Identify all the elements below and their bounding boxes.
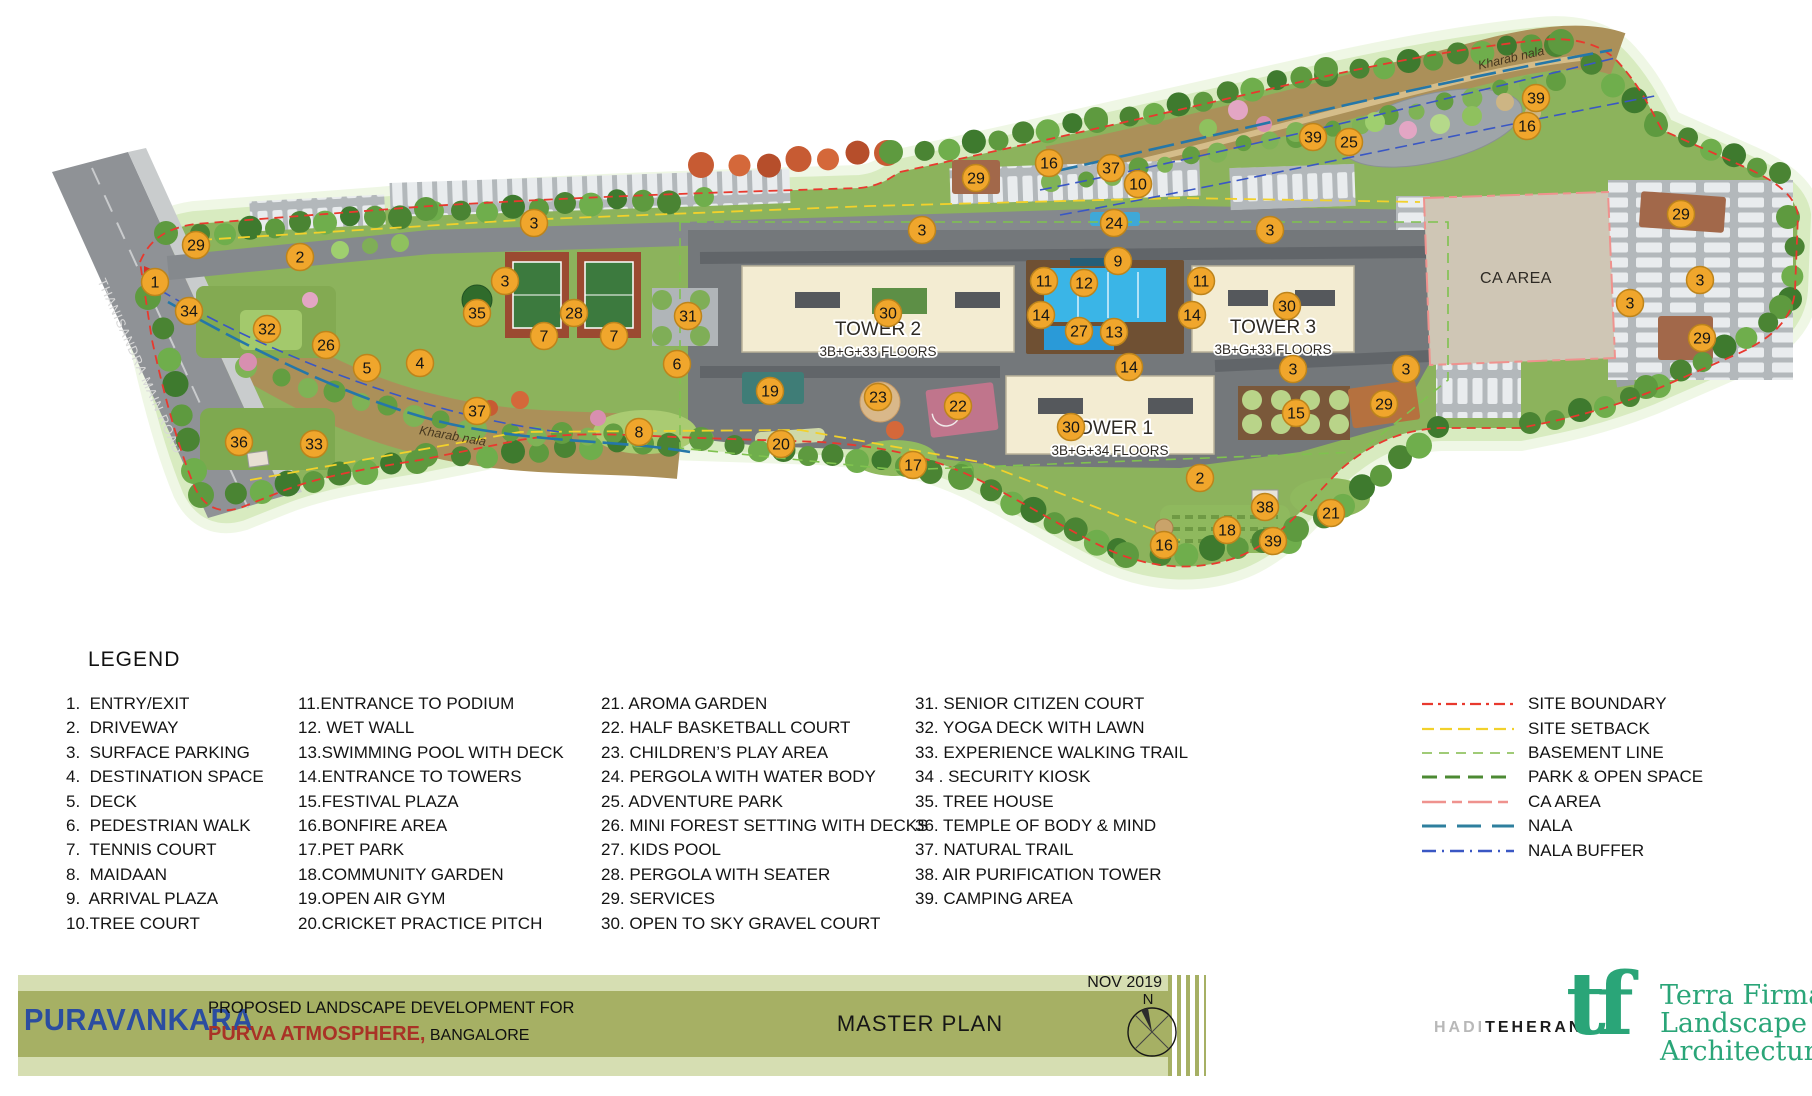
plan-marker: 12 <box>1071 270 1098 297</box>
plan-marker: 16 <box>1514 113 1541 140</box>
legend-item: 23. CHILDREN’S PLAY AREA <box>601 741 928 765</box>
legend-item: 28. PERGOLA WITH SEATER <box>601 863 928 887</box>
legend-column: 31. SENIOR CITIZEN COURT32. YOGA DECK WI… <box>915 692 1188 912</box>
svg-text:39: 39 <box>1527 91 1545 108</box>
svg-text:3: 3 <box>918 223 927 240</box>
plan-marker: 33 <box>301 431 328 458</box>
legend-item: 5. DECK <box>66 790 264 814</box>
plan-marker: 3 <box>1617 290 1644 317</box>
plan-marker: 29 <box>1668 201 1695 228</box>
svg-text:14: 14 <box>1183 308 1201 325</box>
site-plan-drawing: THANISANDRA MAIN ROAD <box>0 0 1812 620</box>
legend-item: 4. DESTINATION SPACE <box>66 765 264 789</box>
plan-marker: 15 <box>1283 400 1310 427</box>
svg-text:11: 11 <box>1036 274 1053 291</box>
legend-line-item: SITE SETBACK <box>1420 716 1703 740</box>
plan-marker: 14 <box>1179 302 1206 329</box>
footer-band-bottom <box>18 1057 1168 1076</box>
ca-area: CA AREA <box>1424 192 1615 365</box>
svg-text:39: 39 <box>1304 130 1322 147</box>
svg-text:3: 3 <box>1266 223 1275 240</box>
legend-item: 36. TEMPLE OF BODY & MIND <box>915 814 1188 838</box>
legend-column: 21. AROMA GARDEN22. HALF BASKETBALL COUR… <box>601 692 928 936</box>
legend-item: 35. TREE HOUSE <box>915 790 1188 814</box>
svg-text:2: 2 <box>296 250 305 267</box>
svg-text:32: 32 <box>258 322 276 339</box>
legend-item: 26. MINI FOREST SETTING WITH DECKS <box>601 814 928 838</box>
legend-item: 31. SENIOR CITIZEN COURT <box>915 692 1188 716</box>
plan-marker: 23 <box>865 384 892 411</box>
project-description: PROPOSED LANDSCAPE DEVELOPMENT FOR <box>208 999 574 1018</box>
project-title: PURVA ATMOSPHERE, BANGALORE <box>208 1023 529 1046</box>
plan-marker: 7 <box>601 323 628 350</box>
legend-line-label: NALA <box>1528 816 1572 836</box>
legend-item: 29. SERVICES <box>601 887 928 911</box>
plan-marker: 27 <box>1066 318 1093 345</box>
project-name: PURVA ATMOSPHERE, <box>208 1023 425 1045</box>
master-plan-title: MASTER PLAN <box>760 1011 1080 1037</box>
legend-line-item: CA AREA <box>1420 790 1703 814</box>
svg-text:24: 24 <box>1105 216 1123 233</box>
plan-marker: 3 <box>909 217 936 244</box>
plan-marker: 29 <box>1689 325 1716 352</box>
tf-logo: tf <box>1566 962 1625 1048</box>
legend-line-swatch <box>1420 822 1516 830</box>
plan-marker: 9 <box>1105 248 1132 275</box>
plan-marker: 35 <box>464 300 491 327</box>
legend-line-swatch <box>1420 798 1516 806</box>
svg-text:4: 4 <box>416 356 425 373</box>
svg-text:1: 1 <box>151 275 160 292</box>
studio-logo-line: Landscape <box>1660 1010 1812 1038</box>
svg-text:38: 38 <box>1256 500 1274 517</box>
legend-line-item: PARK & OPEN SPACE <box>1420 765 1703 789</box>
plan-marker: 3 <box>521 210 548 237</box>
north-compass: N <box>1118 988 1188 1066</box>
legend-item: 13.SWIMMING POOL WITH DECK <box>298 741 564 765</box>
legend-line-swatch <box>1420 773 1516 781</box>
svg-text:3: 3 <box>1626 296 1635 313</box>
legend-item: 3. SURFACE PARKING <box>66 741 264 765</box>
svg-text:16: 16 <box>1518 119 1536 136</box>
legend-item: 2. DRIVEWAY <box>66 716 264 740</box>
plan-marker: 28 <box>561 300 588 327</box>
legend-item: 20.CRICKET PRACTICE PITCH <box>298 912 564 936</box>
master-plan-poster: THANISANDRA MAIN ROAD <box>0 0 1812 1096</box>
svg-text:29: 29 <box>1375 397 1393 414</box>
svg-text:36: 36 <box>230 435 248 452</box>
legend-item: 9. ARRIVAL PLAZA <box>66 887 264 911</box>
legend-item: 21. AROMA GARDEN <box>601 692 928 716</box>
svg-text:6: 6 <box>673 357 682 374</box>
plan-marker: 10 <box>1125 171 1152 198</box>
legend-item: 8. MAIDAAN <box>66 863 264 887</box>
legend-item: 33. EXPERIENCE WALKING TRAIL <box>915 741 1188 765</box>
plan-marker: 32 <box>254 316 281 343</box>
plan-marker: 21 <box>1318 500 1345 527</box>
legend-item: 25. ADVENTURE PARK <box>601 790 928 814</box>
svg-text:25: 25 <box>1340 135 1358 152</box>
legend-line-label: SITE BOUNDARY <box>1528 694 1667 714</box>
svg-text:29: 29 <box>1693 331 1711 348</box>
svg-text:2: 2 <box>1196 471 1205 488</box>
legend-item: 30. OPEN TO SKY GRAVEL COURT <box>601 912 928 936</box>
svg-text:14: 14 <box>1120 360 1138 377</box>
plan-marker: 36 <box>226 429 253 456</box>
svg-text:20: 20 <box>772 437 790 454</box>
plan-marker: 37 <box>1098 155 1125 182</box>
svg-text:29: 29 <box>187 238 205 255</box>
tower-floors: 3B+G+33 FLOORS <box>819 344 936 359</box>
plan-marker: 16 <box>1036 150 1063 177</box>
plan-marker: 11 <box>1031 268 1058 295</box>
plan-marker: 37 <box>464 398 491 425</box>
svg-text:37: 37 <box>468 404 486 421</box>
studio-logo-line: Terra Firma <box>1660 982 1812 1010</box>
svg-text:30: 30 <box>1278 299 1296 316</box>
svg-text:28: 28 <box>565 306 583 323</box>
plan-marker: 22 <box>945 393 972 420</box>
legend-item: 38. AIR PURIFICATION TOWER <box>915 863 1188 887</box>
legend-line-item: BASEMENT LINE <box>1420 741 1703 765</box>
svg-text:27: 27 <box>1070 324 1088 341</box>
svg-text:22: 22 <box>949 399 967 416</box>
plan-marker: 4 <box>407 350 434 377</box>
plan-marker: 38 <box>1252 494 1279 521</box>
legend-item: 15.FESTIVAL PLAZA <box>298 790 564 814</box>
plan-marker: 30 <box>875 300 902 327</box>
svg-text:31: 31 <box>679 309 697 326</box>
svg-text:16: 16 <box>1040 156 1058 173</box>
temple-of-body-mind <box>247 451 269 468</box>
svg-text:35: 35 <box>468 306 486 323</box>
legend-title: LEGEND <box>88 648 180 672</box>
plan-marker: 3 <box>1393 356 1420 383</box>
plan-marker: 1 <box>142 269 169 296</box>
svg-text:10: 10 <box>1129 177 1147 194</box>
legend-item: 18.COMMUNITY GARDEN <box>298 863 564 887</box>
plan-marker: 39 <box>1300 124 1327 151</box>
legend-item: 12. WET WALL <box>298 716 564 740</box>
plan-marker: 39 <box>1523 85 1550 112</box>
svg-text:11: 11 <box>1193 274 1210 291</box>
legend-item: 34 . SECURITY KIOSK <box>915 765 1188 789</box>
plan-marker: 17 <box>900 452 927 479</box>
svg-text:3: 3 <box>1402 362 1411 379</box>
plan-marker: 3 <box>1257 217 1284 244</box>
legend-item: 1. ENTRY/EXIT <box>66 692 264 716</box>
svg-text:21: 21 <box>1322 506 1340 523</box>
svg-text:3: 3 <box>501 274 510 291</box>
legend-item: 7. TENNIS COURT <box>66 838 264 862</box>
plan-marker: 2 <box>1187 465 1214 492</box>
svg-text:16: 16 <box>1155 538 1173 555</box>
svg-text:3: 3 <box>530 216 539 233</box>
swimming-pool <box>1044 268 1166 322</box>
legend-item: 19.OPEN AIR GYM <box>298 887 564 911</box>
plan-marker: 5 <box>354 355 381 382</box>
plan-marker: 2 <box>287 244 314 271</box>
svg-text:34: 34 <box>180 304 198 321</box>
svg-text:14: 14 <box>1032 308 1050 325</box>
plan-marker: 34 <box>176 298 203 325</box>
plan-marker: 6 <box>664 351 691 378</box>
plan-marker: 3 <box>492 268 519 295</box>
plan-marker: 26 <box>313 332 340 359</box>
legend-item: 22. HALF BASKETBALL COURT <box>601 716 928 740</box>
plan-marker: 3 <box>1280 356 1307 383</box>
tower-name: TOWER 3 <box>1230 317 1316 338</box>
plan-marker: 24 <box>1101 210 1128 237</box>
legend-line-item: NALA <box>1420 814 1703 838</box>
legend-item: 24. PERGOLA WITH WATER BODY <box>601 765 928 789</box>
legend-item: 11.ENTRANCE TO PODIUM <box>298 692 564 716</box>
ca-area-label: CA AREA <box>1480 270 1552 287</box>
svg-text:5: 5 <box>363 361 372 378</box>
legend-item: 39. CAMPING AREA <box>915 887 1188 911</box>
legend-item: 27. KIDS POOL <box>601 838 928 862</box>
plan-marker: 18 <box>1214 517 1241 544</box>
plan-marker: 31 <box>675 303 702 330</box>
plan-marker: 8 <box>626 419 653 446</box>
svg-text:30: 30 <box>879 306 897 323</box>
legend-line-items: SITE BOUNDARYSITE SETBACKBASEMENT LINEPA… <box>1420 692 1703 863</box>
legend-line-label: SITE SETBACK <box>1528 719 1650 739</box>
legend-item: 6. PEDESTRIAN WALK <box>66 814 264 838</box>
plan-marker: 16 <box>1151 532 1178 559</box>
svg-text:12: 12 <box>1075 276 1093 293</box>
plan-marker: 3 <box>1687 267 1714 294</box>
svg-text:23: 23 <box>869 390 887 407</box>
terra-firma-logo: Terra FirmaLandscapeArchitecture <box>1660 982 1812 1066</box>
legend-item: 37. NATURAL TRAIL <box>915 838 1188 862</box>
plan-marker: 14 <box>1028 302 1055 329</box>
plan-marker: 29 <box>1371 391 1398 418</box>
architect-light: HADI <box>1434 1019 1485 1036</box>
legend-line-item: NALA BUFFER <box>1420 838 1703 862</box>
plan-marker: 19 <box>757 378 784 405</box>
plan-marker: 39 <box>1260 528 1287 555</box>
legend-line-label: BASEMENT LINE <box>1528 743 1664 763</box>
plan-marker: 20 <box>768 431 795 458</box>
legend-item: 10.TREE COURT <box>66 912 264 936</box>
plan-marker: 11 <box>1188 268 1215 295</box>
footer-band-top <box>18 975 1168 991</box>
north-label: N <box>1143 991 1154 1008</box>
svg-text:37: 37 <box>1102 161 1120 178</box>
plan-marker: 25 <box>1336 129 1363 156</box>
legend-column: 1. ENTRY/EXIT2. DRIVEWAY3. SURFACE PARKI… <box>66 692 264 936</box>
svg-text:19: 19 <box>761 384 779 401</box>
legend-item: 16.BONFIRE AREA <box>298 814 564 838</box>
plan-marker: 30 <box>1058 414 1085 441</box>
plan-marker: 29 <box>963 165 990 192</box>
svg-text:39: 39 <box>1264 534 1282 551</box>
svg-text:29: 29 <box>1672 207 1690 224</box>
svg-text:9: 9 <box>1114 254 1123 271</box>
legend-line-label: PARK & OPEN SPACE <box>1528 767 1703 787</box>
legend-column: 11.ENTRANCE TO PODIUM12. WET WALL13.SWIM… <box>298 692 564 936</box>
legend-line-swatch <box>1420 749 1516 757</box>
plan-marker: 30 <box>1274 293 1301 320</box>
svg-text:7: 7 <box>540 329 549 346</box>
legend-item: 32. YOGA DECK WITH LAWN <box>915 716 1188 740</box>
svg-text:13: 13 <box>1105 325 1123 342</box>
svg-text:17: 17 <box>904 458 922 475</box>
legend-item: 14.ENTRANCE TO TOWERS <box>298 765 564 789</box>
svg-text:30: 30 <box>1062 420 1080 437</box>
svg-text:3: 3 <box>1696 273 1705 290</box>
svg-text:8: 8 <box>635 425 644 442</box>
svg-text:15: 15 <box>1287 406 1305 423</box>
legend-item: 17.PET PARK <box>298 838 564 862</box>
studio-logo-line: Architecture <box>1660 1038 1812 1066</box>
legend-line-swatch <box>1420 700 1516 708</box>
svg-text:29: 29 <box>967 171 985 188</box>
svg-text:26: 26 <box>317 338 335 355</box>
svg-text:3: 3 <box>1289 362 1298 379</box>
tower-floors: 3B+G+34 FLOORS <box>1051 443 1168 458</box>
svg-text:7: 7 <box>610 329 619 346</box>
legend-line-label: NALA BUFFER <box>1528 841 1644 861</box>
tower-floors: 3B+G+33 FLOORS <box>1214 342 1331 357</box>
legend-line-swatch <box>1420 847 1516 855</box>
plan-marker: 13 <box>1101 319 1128 346</box>
legend-line-label: CA AREA <box>1528 792 1601 812</box>
legend-line-swatch <box>1420 725 1516 733</box>
svg-text:33: 33 <box>305 437 323 454</box>
plan-marker: 29 <box>183 232 210 259</box>
svg-text:18: 18 <box>1218 523 1236 540</box>
plan-marker: 7 <box>531 323 558 350</box>
legend-line-item: SITE BOUNDARY <box>1420 692 1703 716</box>
plan-marker: 14 <box>1116 354 1143 381</box>
project-city: BANGALORE <box>425 1027 529 1044</box>
